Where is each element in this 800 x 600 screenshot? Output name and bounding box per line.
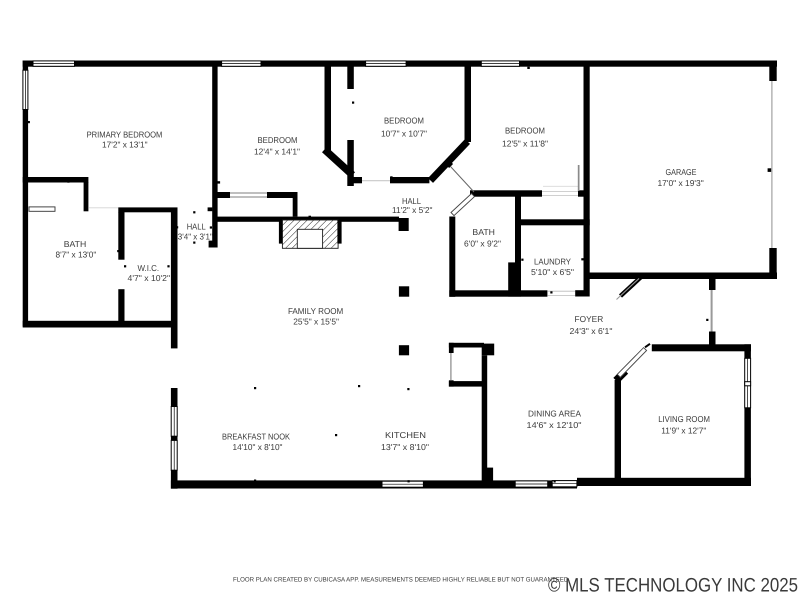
svg-text:12'5" x 11'8": 12'5" x 11'8" xyxy=(502,138,548,148)
svg-text:14'10" x 8'10": 14'10" x 8'10" xyxy=(233,442,283,452)
svg-text:6'0" x 9'2": 6'0" x 9'2" xyxy=(464,238,501,248)
svg-text:W.I.C.: W.I.C. xyxy=(137,263,159,273)
svg-text:BATH: BATH xyxy=(64,239,87,249)
svg-text:LIVING ROOM: LIVING ROOM xyxy=(658,414,710,424)
svg-text:25'5" x 15'5": 25'5" x 15'5" xyxy=(293,317,339,327)
svg-text:BEDROOM: BEDROOM xyxy=(258,135,298,145)
svg-text:GARAGE: GARAGE xyxy=(666,167,697,177)
svg-text:FAMILY ROOM: FAMILY ROOM xyxy=(288,306,343,316)
svg-text:FOYER: FOYER xyxy=(575,314,604,324)
svg-text:3'4" x 3'1": 3'4" x 3'1" xyxy=(178,232,213,242)
svg-text:10'7" x 10'7": 10'7" x 10'7" xyxy=(381,128,427,138)
svg-text:DINING AREA: DINING AREA xyxy=(528,409,581,419)
svg-text:14'6" x 12'10": 14'6" x 12'10" xyxy=(527,420,582,430)
svg-text:BEDROOM: BEDROOM xyxy=(384,116,424,126)
svg-text:17'0" x 19'3": 17'0" x 19'3" xyxy=(658,178,704,188)
svg-text:BEDROOM: BEDROOM xyxy=(505,126,545,136)
svg-text:11'9" x 12'7": 11'9" x 12'7" xyxy=(661,426,706,436)
svg-text:BATH: BATH xyxy=(472,227,495,237)
svg-text:11'2" x 5'2": 11'2" x 5'2" xyxy=(392,205,433,215)
svg-text:KITCHEN: KITCHEN xyxy=(385,430,426,440)
svg-text:BREAKFAST NOOK: BREAKFAST NOOK xyxy=(222,432,290,442)
svg-text:FLOOR PLAN CREATED BY CUBICASA: FLOOR PLAN CREATED BY CUBICASA APP. MEAS… xyxy=(233,577,570,584)
svg-text:24'3" x 6'1": 24'3" x 6'1" xyxy=(570,326,613,336)
svg-text:4'7" x 10'2": 4'7" x 10'2" xyxy=(128,273,171,283)
svg-text:5'10" x 6'5": 5'10" x 6'5" xyxy=(531,267,574,277)
svg-text:13'7" x 8'10": 13'7" x 8'10" xyxy=(381,442,429,452)
svg-text:LAUNDRY: LAUNDRY xyxy=(534,256,571,266)
svg-text:PRIMARY BEDROOM: PRIMARY BEDROOM xyxy=(87,129,163,139)
svg-text:HALL: HALL xyxy=(187,222,206,232)
svg-text:12'4" x 14'1": 12'4" x 14'1" xyxy=(254,147,300,157)
svg-text:8'7" x 13'0": 8'7" x 13'0" xyxy=(56,250,97,260)
svg-text:17'2" x 13'1": 17'2" x 13'1" xyxy=(102,140,148,150)
svg-text:© MLS TECHNOLOGY INC 2025: © MLS TECHNOLOGY INC 2025 xyxy=(548,575,798,597)
